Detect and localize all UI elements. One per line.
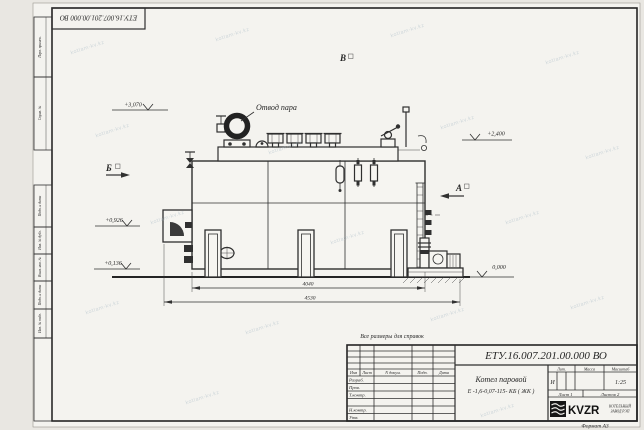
product-name-line1: Котел паровой bbox=[475, 375, 527, 384]
sheets-total: Листов 2 bbox=[600, 392, 620, 397]
margin-label: Подп. и дата bbox=[38, 285, 42, 307]
format-label: Формат А3 bbox=[581, 424, 609, 430]
row-label-tkontr: Т.контр. bbox=[349, 393, 366, 398]
dim-value: 4040 bbox=[303, 281, 314, 288]
support-leg bbox=[205, 230, 221, 277]
margin-label: Справ. № bbox=[38, 105, 42, 120]
row-label-prov: Пров. bbox=[348, 385, 360, 390]
elevation-value: 0,000 bbox=[492, 265, 506, 271]
callout-label: Отвод пара bbox=[256, 103, 297, 112]
product-name-line2: Е -1,6-0,07-115- КБ ( ЖК ) bbox=[467, 388, 535, 395]
header-masshtab: Масштаб bbox=[611, 367, 631, 372]
drawing-canvas: Перв. примен. Справ. № Подп. и дата Инв.… bbox=[0, 0, 644, 430]
company-name-line2: ЗАВОД РЭП bbox=[611, 410, 630, 414]
steam-drum-platform bbox=[218, 147, 398, 161]
elevation-value: +0,136 bbox=[104, 261, 122, 267]
logo-text: KVZR bbox=[568, 405, 600, 417]
margin-label: Инв. № подл. bbox=[38, 313, 42, 334]
rear-fittings bbox=[426, 210, 432, 235]
lit-value: И bbox=[549, 380, 555, 386]
margin-label: Перв. примен. bbox=[38, 36, 42, 58]
doc-number: ЕТУ.16.007.201.00.000 ВО bbox=[484, 350, 607, 362]
view-letter: А bbox=[455, 183, 462, 193]
reference-note: Все размеры для справок bbox=[360, 333, 424, 340]
row-label-utv: Утв. bbox=[349, 415, 359, 420]
support-leg bbox=[298, 230, 314, 277]
col-header-ndokum: N докум. bbox=[384, 370, 400, 375]
col-header-list: Лист bbox=[361, 370, 372, 375]
row-label-nkontr: Н.контр. bbox=[348, 408, 367, 413]
margin-label: Инв. № дубл. bbox=[38, 230, 42, 251]
sheet-number: Лист 1 bbox=[557, 392, 572, 397]
scale-value: 1:25 bbox=[615, 380, 626, 386]
elevation-value: +0,926 bbox=[105, 218, 123, 224]
header-lit: Лит. bbox=[556, 367, 566, 372]
row-label-razrab: Разраб. bbox=[348, 378, 364, 383]
margin-label: Подп. и дата bbox=[38, 196, 42, 218]
support-leg bbox=[391, 230, 407, 277]
drawing-sheet: Перв. примен. Справ. № Подп. и дата Инв.… bbox=[0, 0, 644, 430]
col-header-podp: Подп. bbox=[416, 370, 427, 375]
header-massa: Масса bbox=[583, 367, 595, 372]
corner-stamp-number: ЕТУ.16.007.201.00.000 ВО bbox=[60, 14, 138, 22]
elevation-value: +3,070 bbox=[124, 103, 142, 109]
elevation-value: +2,400 bbox=[487, 131, 505, 138]
col-header-data: Дата bbox=[438, 370, 449, 375]
col-header-izm: Изм bbox=[349, 370, 358, 375]
margin-label: Взам. инв. № bbox=[38, 256, 42, 276]
view-letter: Б bbox=[105, 163, 112, 173]
dim-value: 4530 bbox=[305, 295, 316, 302]
view-letter: В bbox=[339, 53, 346, 63]
